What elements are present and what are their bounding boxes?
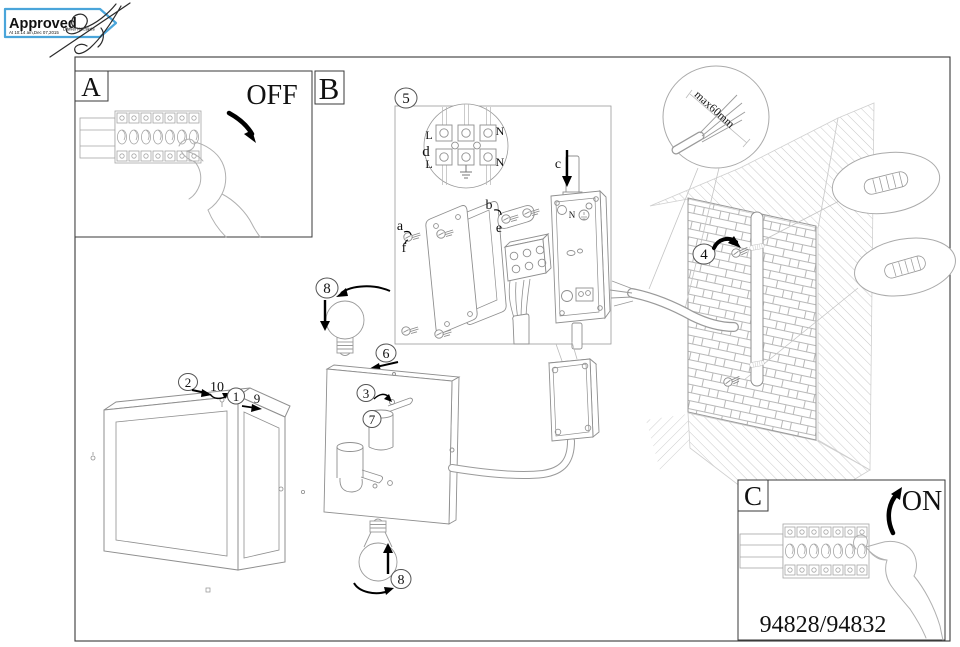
junction-box-assembled (452, 342, 599, 475)
panel-b-label: B (319, 71, 340, 106)
on-label: ON (902, 486, 942, 517)
part-label-a: a (397, 219, 404, 234)
part-label-e: e (496, 221, 502, 236)
panel-a: A OFF (75, 71, 312, 237)
hatch-corner (646, 414, 690, 470)
stamp-datetime: At 10:14 am,Dec 07,2015 (9, 30, 59, 35)
part-label-c: c (555, 157, 561, 172)
step10-number: 10 (210, 380, 224, 395)
step3-number: 3 (363, 386, 370, 401)
wiring-detail: L N d L N (422, 104, 508, 188)
breaker-strip-a (80, 111, 201, 163)
wiring-label-l-top: L (425, 128, 432, 142)
step7-number: 7 (369, 412, 376, 427)
panel-a-label: A (81, 72, 101, 102)
bulb-top (326, 301, 364, 356)
terminal-block (505, 234, 551, 344)
screw-a (404, 233, 421, 241)
screw (402, 327, 419, 335)
panel-c: C ON 94828/94832 (738, 480, 945, 640)
product-code: 94828/94832 (760, 612, 887, 638)
wiring-label-n-top: N (496, 124, 505, 138)
off-label: OFF (246, 80, 297, 111)
step5-number: 5 (402, 91, 410, 107)
step1-number: 1 (233, 389, 240, 404)
instruction-sheet: Approved Daniel Kecskés At 10:14 am,Dec … (0, 0, 960, 647)
diagram-canvas: Approved Daniel Kecskés At 10:14 am,Dec … (0, 0, 960, 647)
callout-max60: max60mm (663, 66, 769, 168)
panel-c-label: C (744, 481, 762, 511)
part-label-f: f (402, 241, 407, 256)
cable-stub-bottom (572, 323, 582, 349)
wall-scene: 4 max60mm (610, 66, 960, 505)
panel-b: B 5 (315, 71, 611, 595)
wiring-label-n-bottom: N (496, 155, 505, 169)
step6-number: 6 (383, 347, 390, 362)
step5-box: 5 (395, 88, 611, 349)
step8-top-number: 8 (323, 281, 331, 297)
back-panel (324, 365, 459, 524)
part-label-b: b (486, 198, 493, 213)
junction-box-exploded (551, 156, 610, 349)
step8-bottom-number: 8 (398, 573, 405, 588)
cover-plate (426, 202, 506, 334)
step4-number: 4 (700, 247, 708, 263)
step9-number: 9 (254, 391, 261, 406)
junction-box-n-mark: N (569, 210, 576, 220)
approved-stamp: Approved Daniel Kecskés At 10:14 am,Dec … (5, 3, 130, 57)
fixture-box (91, 388, 305, 592)
wiring-label-l-bottom: L (425, 157, 432, 171)
step2-number: 2 (185, 375, 192, 390)
